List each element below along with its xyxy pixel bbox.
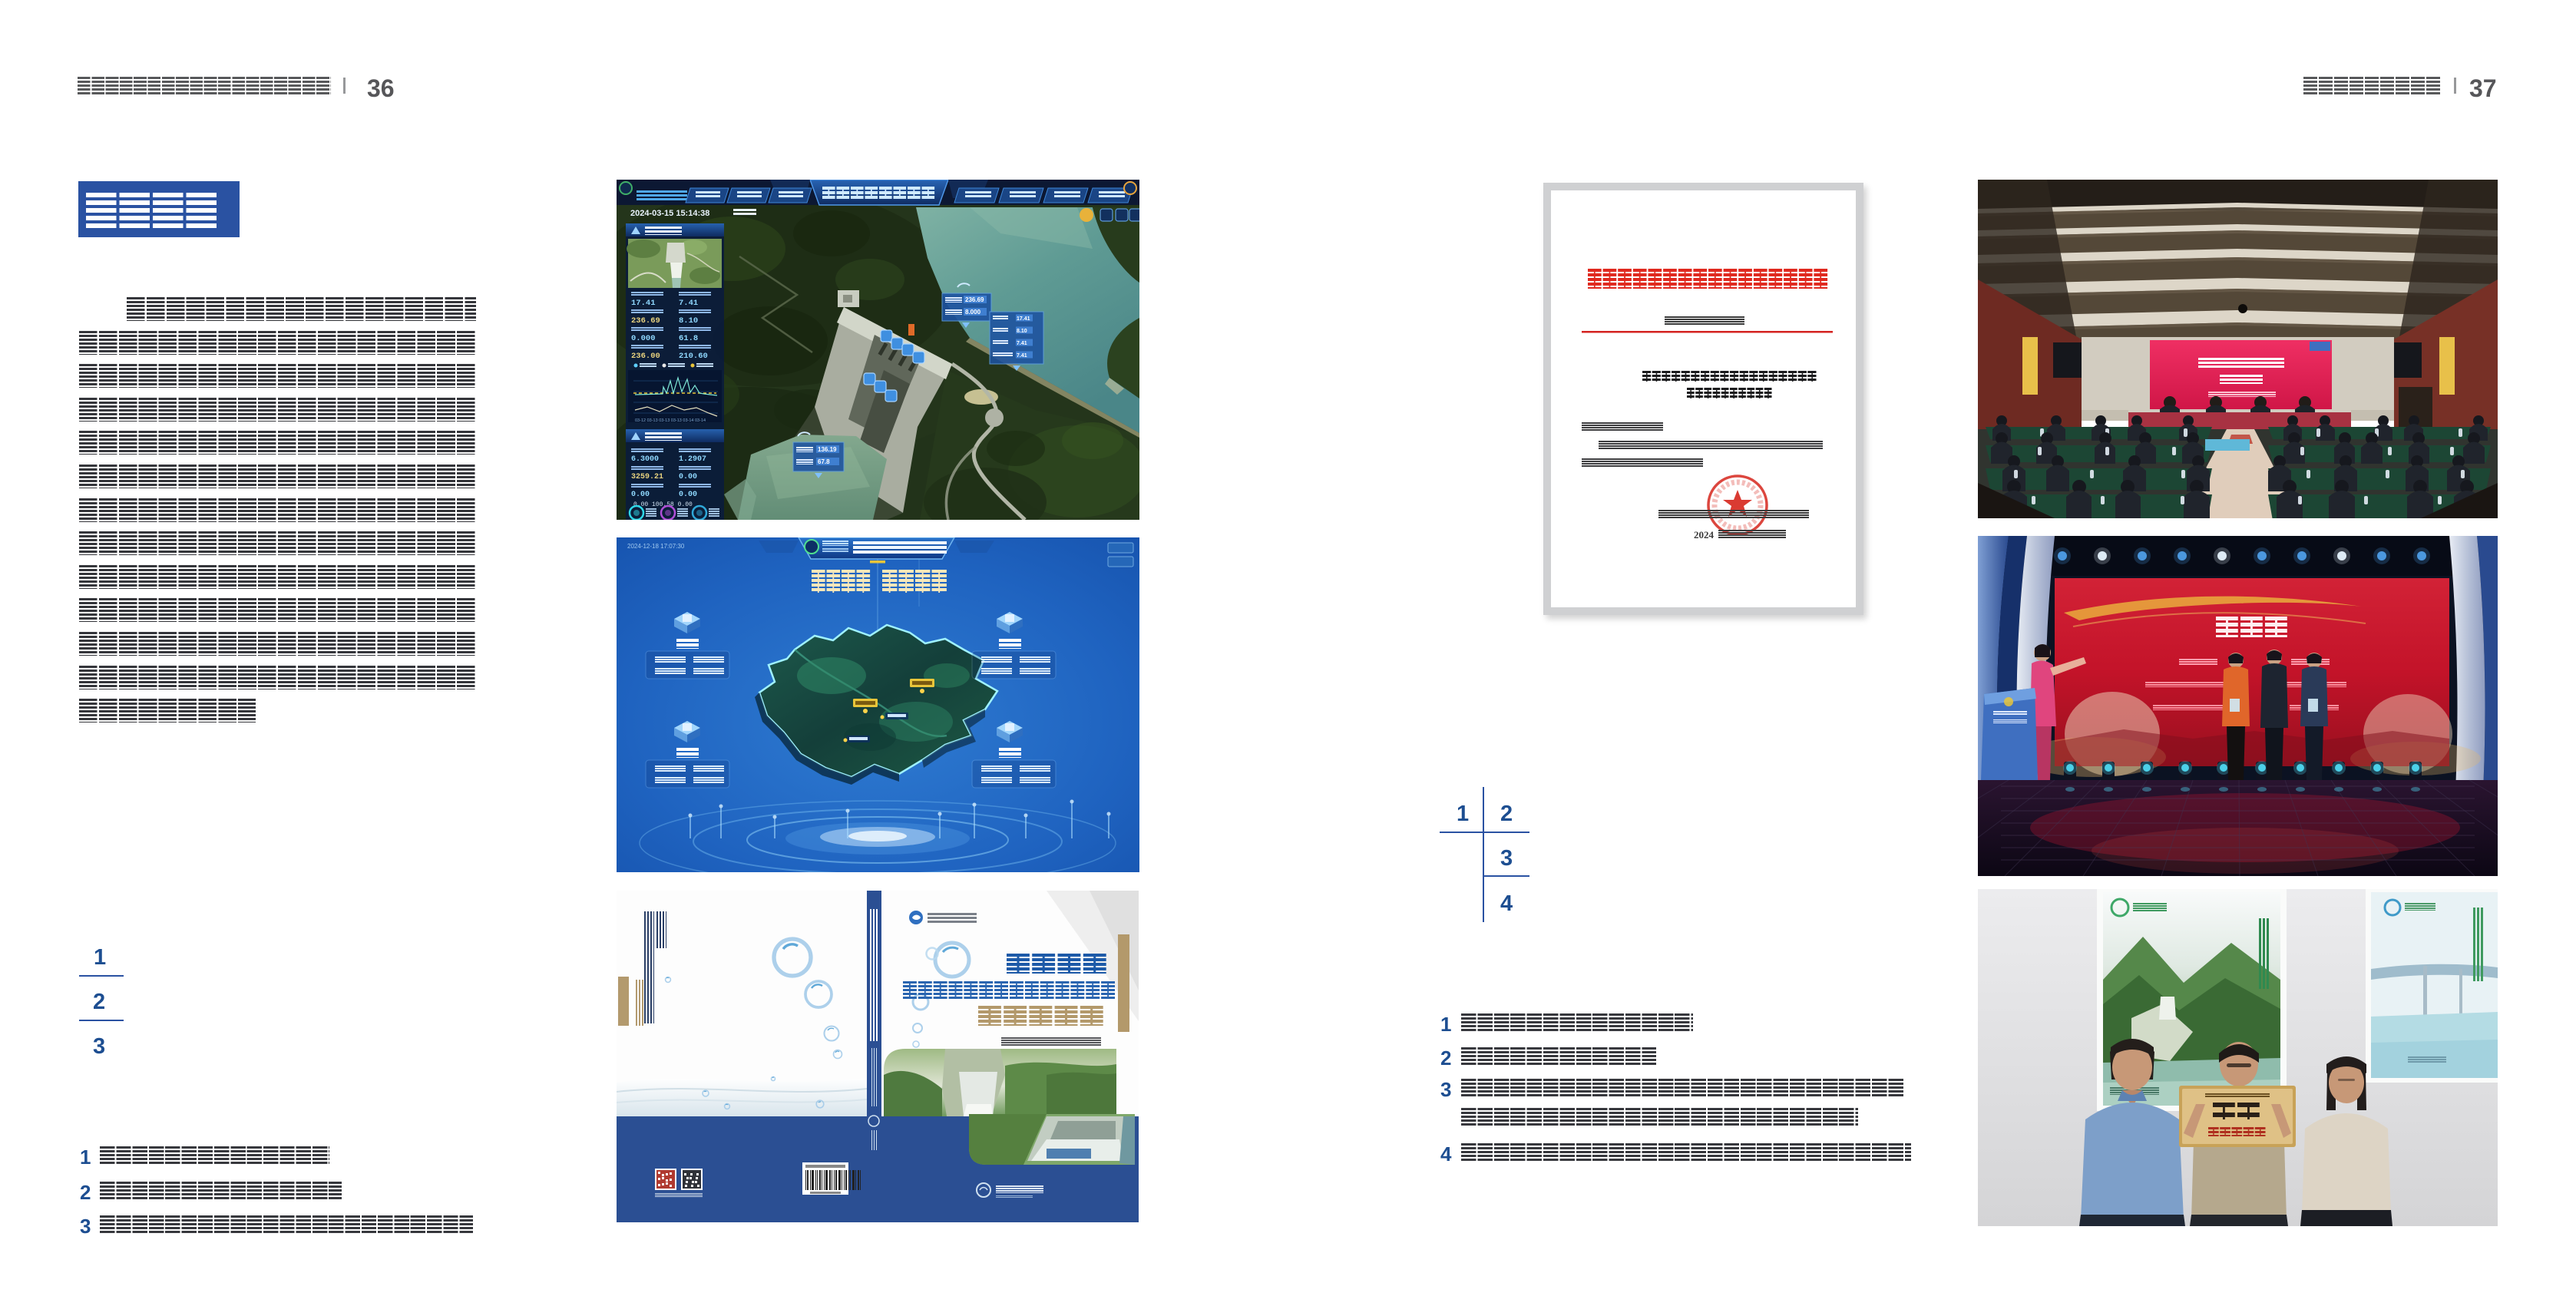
svg-text:67.8: 67.8 bbox=[818, 458, 830, 465]
svg-text:7.41: 7.41 bbox=[1017, 341, 1027, 346]
svg-text:17.41: 17.41 bbox=[631, 299, 656, 308]
svg-text:03-12 03-13 03-13 03-13 03: 03-12 03-13 03-13 03-13 03-14 03-14 bbox=[635, 418, 706, 423]
svg-text:236.00: 236.00 bbox=[631, 352, 660, 361]
svg-text:136.19: 136.19 bbox=[818, 446, 837, 453]
svg-text:7.41: 7.41 bbox=[679, 299, 698, 308]
svg-text:0.00: 0.00 bbox=[631, 491, 650, 499]
svg-text:2024: 2024 bbox=[1694, 529, 1715, 541]
svg-text:8.10: 8.10 bbox=[679, 316, 698, 326]
svg-text:7.41: 7.41 bbox=[1017, 353, 1027, 359]
svg-text:0.000: 0.000 bbox=[631, 334, 656, 343]
svg-text:236.69: 236.69 bbox=[631, 316, 660, 326]
svg-text:6.3000: 6.3000 bbox=[631, 455, 659, 464]
svg-text:1.2907: 1.2907 bbox=[679, 455, 706, 464]
svg-text:17.41: 17.41 bbox=[1017, 316, 1030, 322]
svg-text:61.8: 61.8 bbox=[679, 334, 698, 343]
svg-text:210.60: 210.60 bbox=[679, 352, 708, 361]
svg-text:3259.21: 3259.21 bbox=[631, 473, 663, 481]
svg-text:8.000: 8.000 bbox=[965, 309, 981, 316]
svg-text:2024-12-18 17:07:30: 2024-12-18 17:07:30 bbox=[627, 543, 685, 550]
svg-text:8.10: 8.10 bbox=[1017, 329, 1027, 334]
svg-text:0.00: 0.00 bbox=[679, 473, 697, 481]
svg-text:0.00: 0.00 bbox=[679, 491, 697, 499]
svg-text:2024-03-15 15:14:38: 2024-03-15 15:14:38 bbox=[630, 209, 709, 218]
svg-text:236.69: 236.69 bbox=[965, 296, 984, 303]
